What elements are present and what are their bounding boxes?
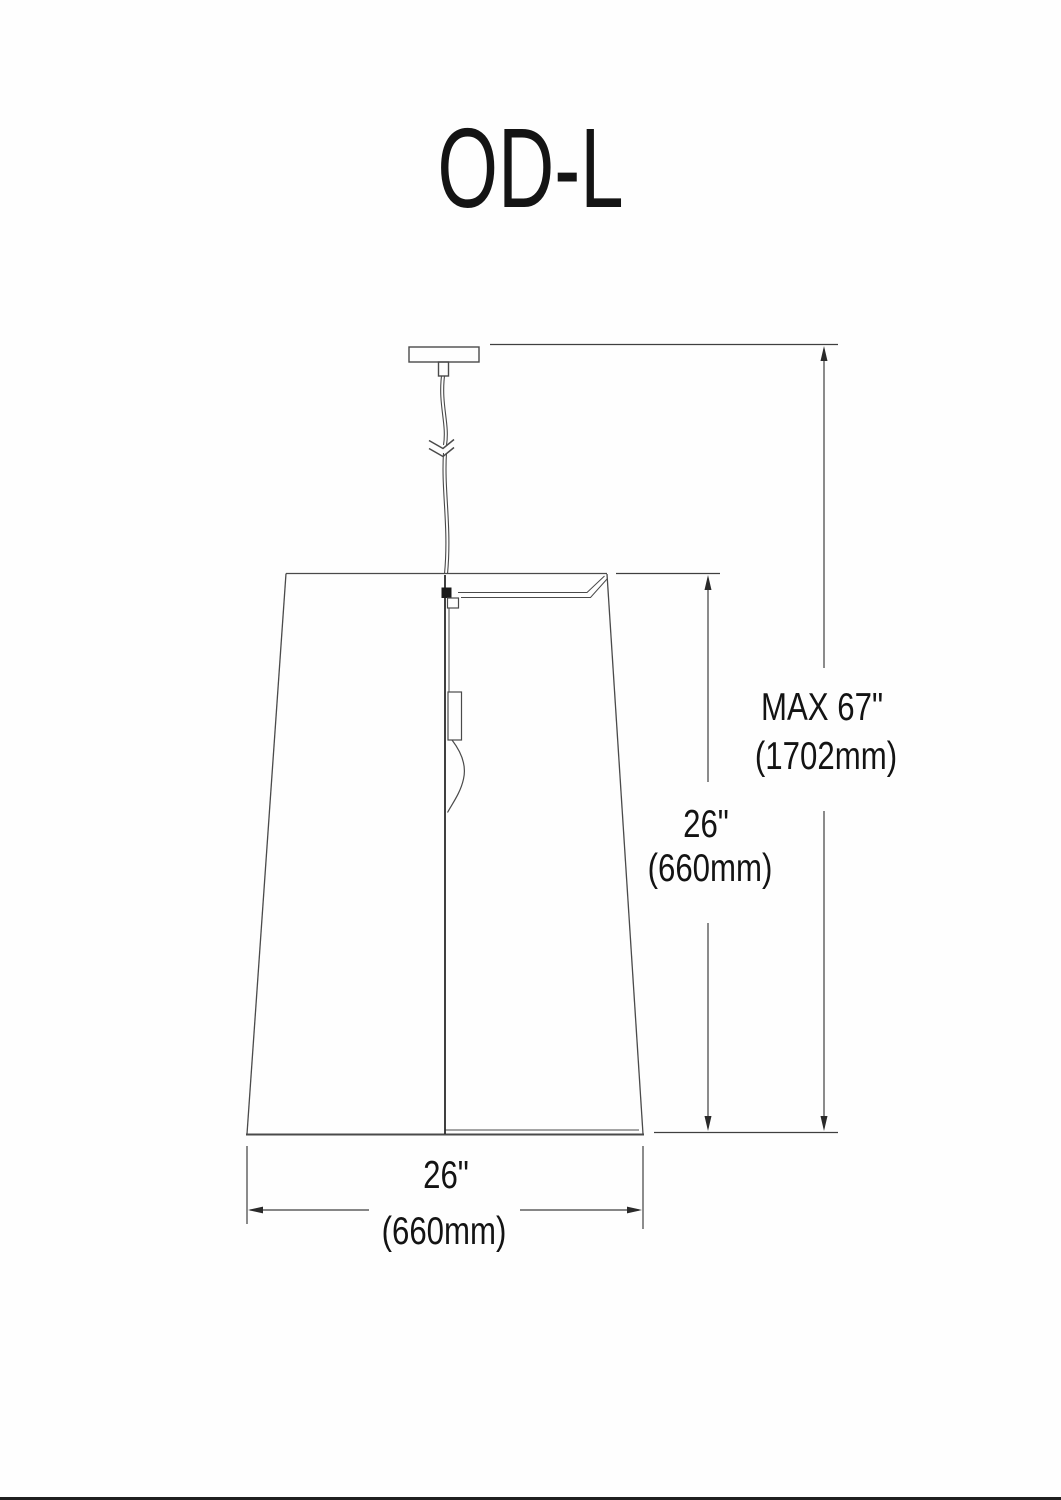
spec-sheet-page: OD-L [0, 0, 1061, 1500]
arrow-down-icon [705, 1116, 712, 1131]
overall-height-metric-label: (1702mm) [755, 737, 897, 776]
shade-left-edge [247, 574, 286, 1135]
cable-lower-2 [446, 453, 449, 574]
cable-lower [443, 453, 446, 574]
canopy-stem [439, 362, 449, 376]
lamp-socket [448, 692, 462, 740]
ceiling-canopy [409, 347, 479, 376]
canopy-plate [409, 347, 479, 362]
arrow-right-icon [627, 1207, 642, 1214]
light-bulb [448, 740, 465, 813]
arrow-up-icon [705, 575, 712, 590]
shade-top-inner-rim-lower [461, 579, 608, 598]
cable-break-icon [429, 440, 454, 457]
shade-width-metric-label: (660mm) [382, 1212, 507, 1251]
overall-height-imperial-label: MAX 67" [761, 688, 883, 727]
shade-width-imperial-label: 26" [423, 1156, 469, 1195]
shade-right-edge [607, 574, 643, 1134]
lamp-shade [246, 574, 644, 1135]
shade-height-metric-label: (660mm) [648, 849, 773, 888]
cord-holder [448, 598, 459, 608]
arrow-up-icon [821, 346, 828, 361]
arrow-left-icon [248, 1207, 263, 1214]
arrow-down-icon [821, 1116, 828, 1131]
shade-top-inner-rim-upper [458, 576, 605, 593]
cord-grip [442, 588, 452, 599]
suspension-cable [429, 376, 454, 574]
shade-height-imperial-label: 26" [683, 805, 729, 844]
pendant-lamp-dimension-drawing [0, 0, 1061, 1500]
